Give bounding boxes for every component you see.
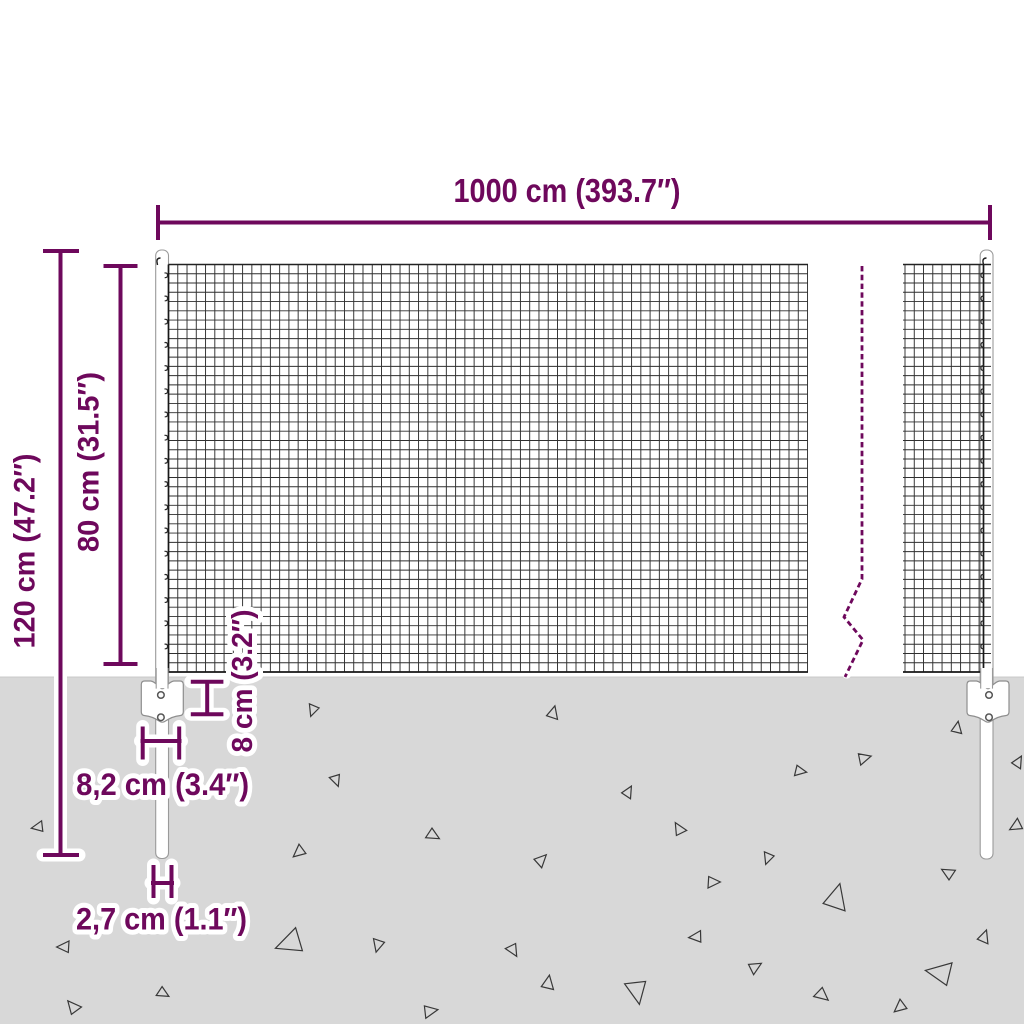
svg-text:120 cm (47.2″): 120 cm (47.2″) bbox=[10, 454, 42, 649]
svg-text:80 cm (31.5″): 80 cm (31.5″) bbox=[74, 372, 106, 552]
svg-text:8,2 cm (3.4″): 8,2 cm (3.4″) bbox=[76, 766, 249, 802]
svg-text:8 cm (3.2″): 8 cm (3.2″) bbox=[227, 610, 259, 753]
svg-text:2,7 cm (1.1″): 2,7 cm (1.1″) bbox=[76, 901, 247, 937]
svg-text:1000 cm (393.7″): 1000 cm (393.7″) bbox=[454, 173, 681, 210]
